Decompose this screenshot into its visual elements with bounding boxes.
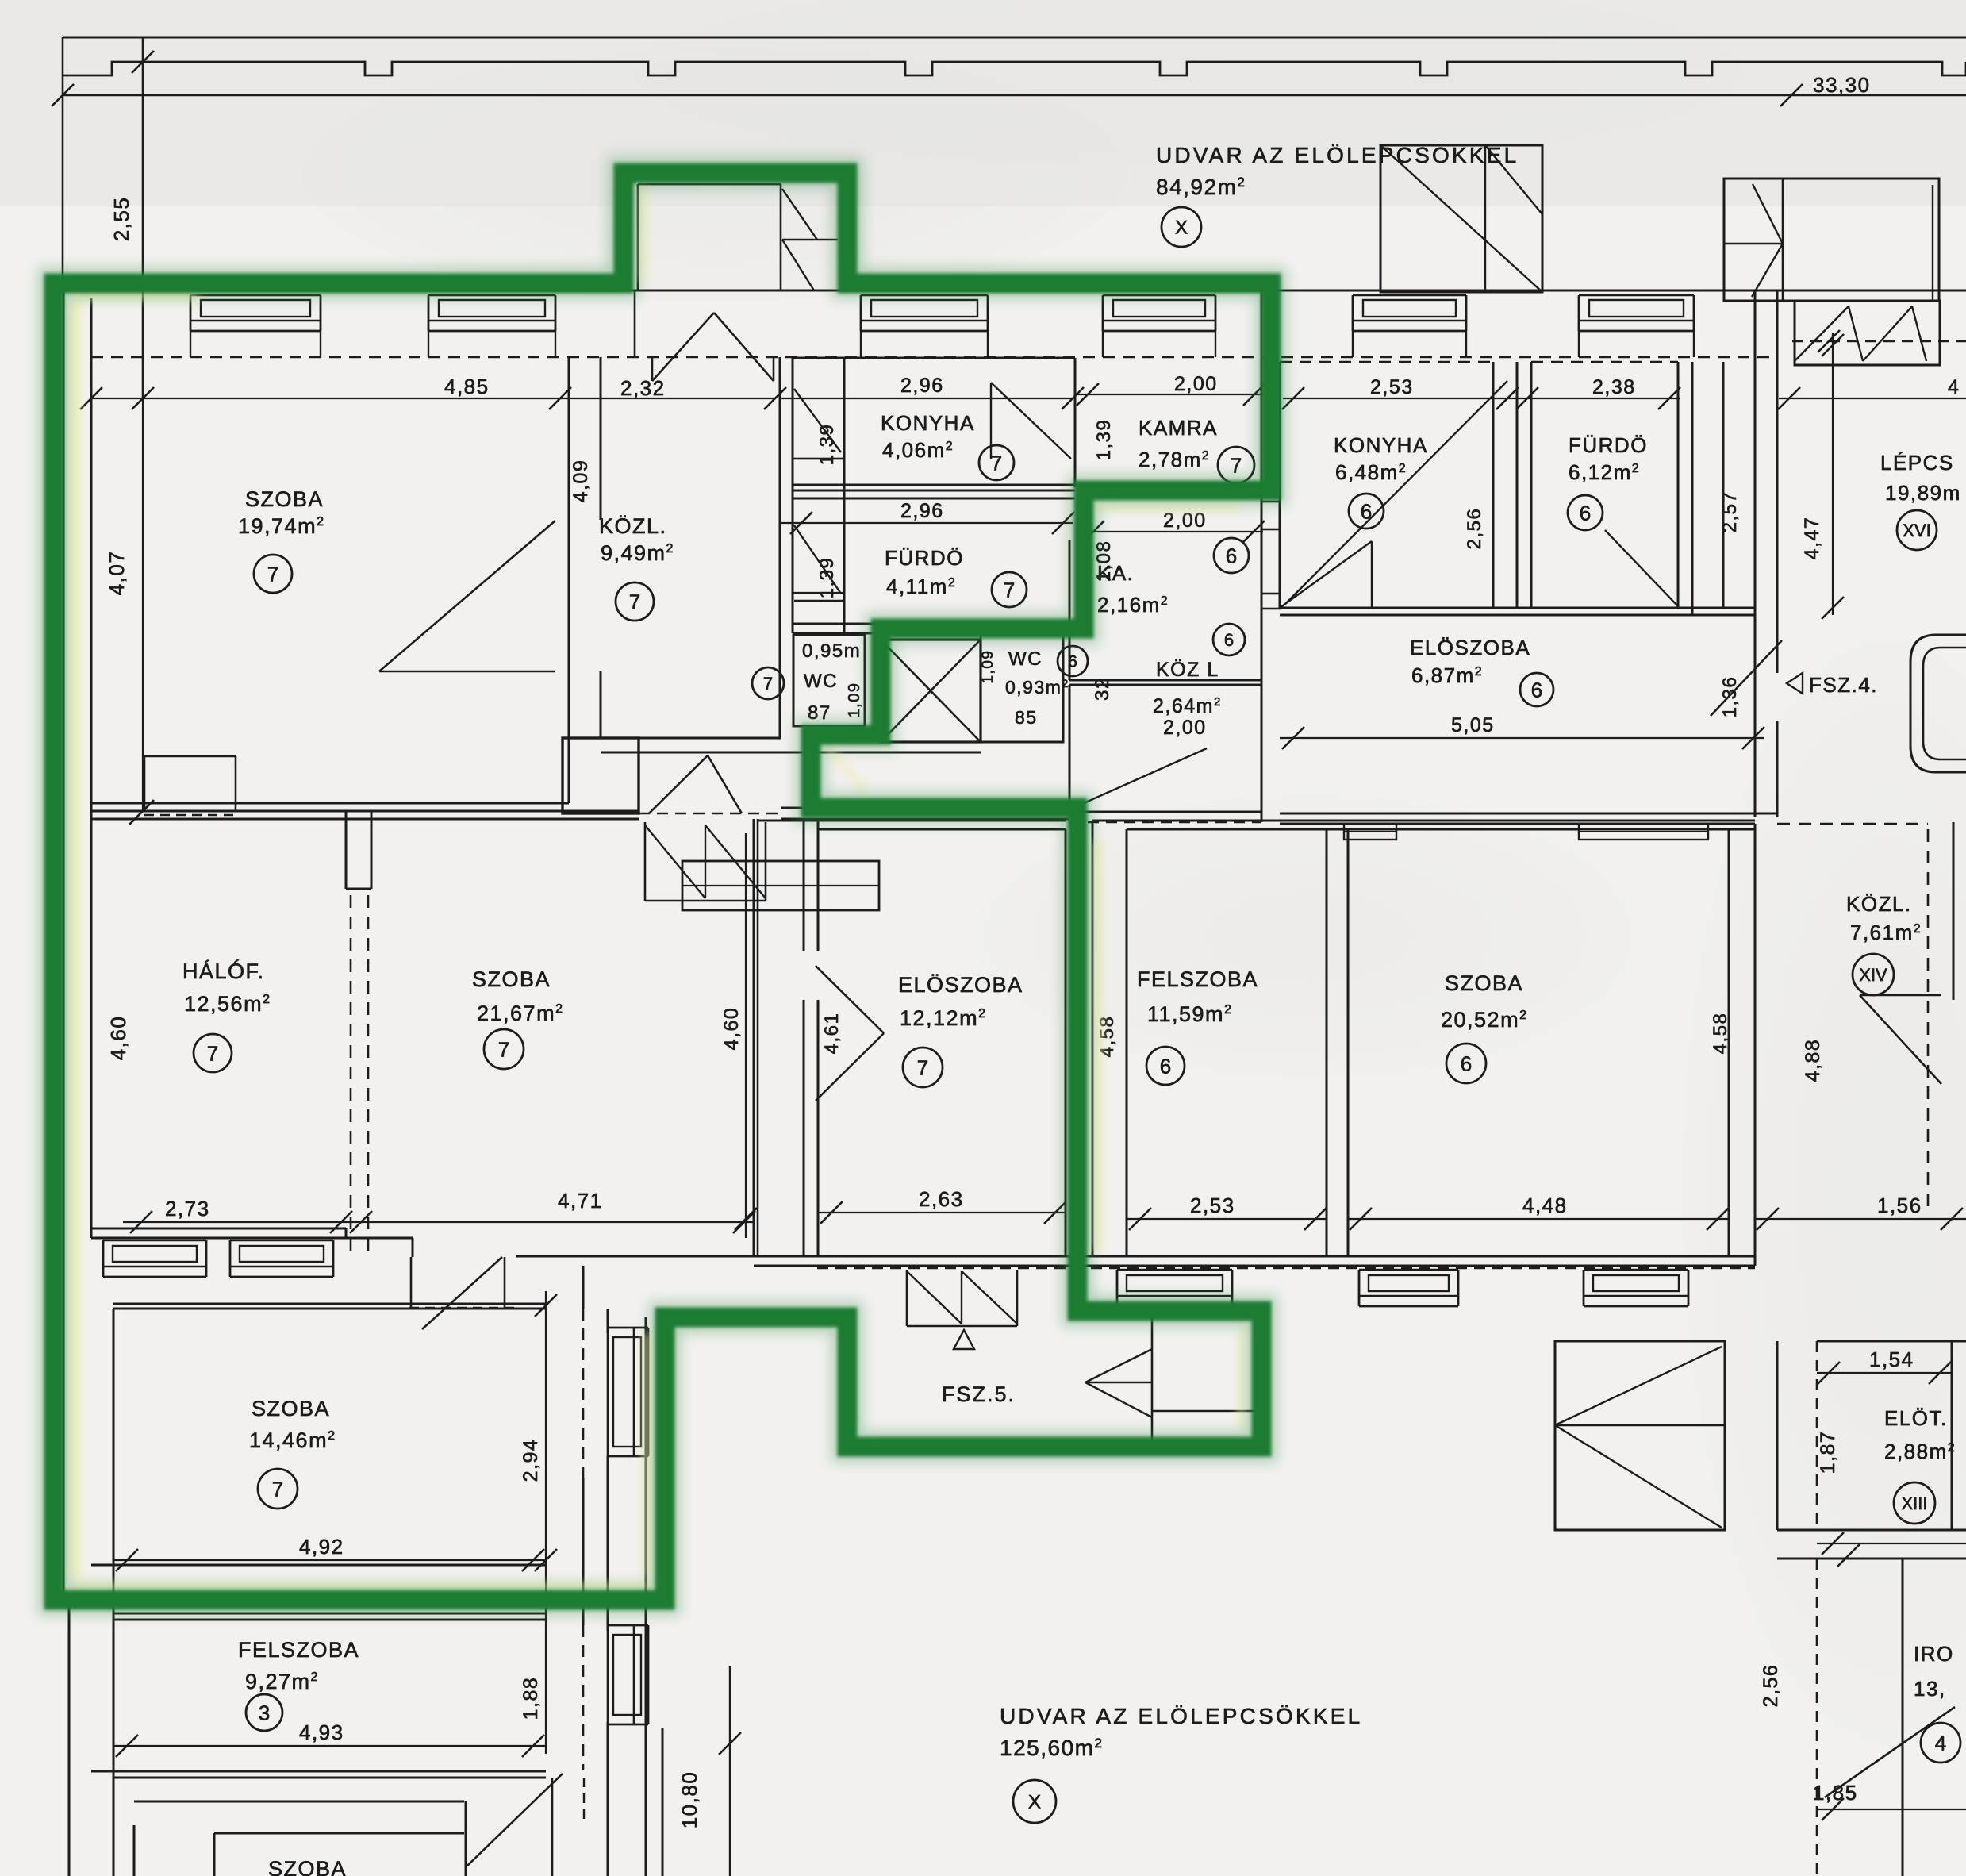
svg-text:6,12m2: 6,12m2 bbox=[1569, 460, 1640, 484]
svg-text:2,53: 2,53 bbox=[1190, 1194, 1235, 1217]
svg-text:SZOBA: SZOBA bbox=[268, 1857, 347, 1876]
svg-text:4,60: 4,60 bbox=[106, 1016, 130, 1061]
svg-text:WC: WC bbox=[804, 671, 838, 692]
svg-text:21,67m2: 21,67m2 bbox=[477, 1001, 563, 1025]
svg-text:2,94: 2,94 bbox=[520, 1439, 542, 1482]
svg-text:20,52m2: 20,52m2 bbox=[1441, 1008, 1527, 1032]
svg-text:7: 7 bbox=[498, 1037, 509, 1061]
svg-text:4,88: 4,88 bbox=[1802, 1039, 1824, 1082]
svg-text:ELÖSZOBA: ELÖSZOBA bbox=[1410, 636, 1530, 659]
svg-text:2,00: 2,00 bbox=[1163, 717, 1207, 739]
svg-text:4,71: 4,71 bbox=[558, 1189, 603, 1213]
svg-text:HÁLÓF.: HÁLÓF. bbox=[182, 959, 265, 983]
svg-text:1,88: 1,88 bbox=[520, 1677, 542, 1720]
svg-text:SZOBA: SZOBA bbox=[252, 1397, 330, 1420]
svg-text:85: 85 bbox=[1015, 707, 1038, 728]
svg-text:2,78m2: 2,78m2 bbox=[1139, 448, 1210, 471]
svg-text:9,27m2: 9,27m2 bbox=[245, 1670, 319, 1693]
svg-text:6,87m2: 6,87m2 bbox=[1411, 663, 1483, 687]
svg-text:2,73: 2,73 bbox=[165, 1197, 210, 1221]
svg-text:4,47: 4,47 bbox=[1801, 517, 1823, 560]
svg-text:FÜRDÖ: FÜRDÖ bbox=[1569, 433, 1648, 457]
svg-text:6: 6 bbox=[1531, 678, 1542, 702]
svg-text:7: 7 bbox=[272, 1477, 283, 1501]
svg-text:FELSZOBA: FELSZOBA bbox=[1137, 967, 1258, 991]
svg-text:2,63: 2,63 bbox=[919, 1187, 964, 1211]
svg-text:KAMRA: KAMRA bbox=[1139, 416, 1218, 440]
svg-text:19,74m2: 19,74m2 bbox=[238, 514, 324, 538]
svg-text:2,32: 2,32 bbox=[620, 376, 666, 400]
svg-text:12,12m2: 12,12m2 bbox=[900, 1006, 986, 1030]
svg-text:7: 7 bbox=[1231, 453, 1242, 477]
svg-text:2,64m2: 2,64m2 bbox=[1153, 695, 1222, 717]
svg-text:X: X bbox=[1175, 217, 1188, 239]
svg-text:4,92: 4,92 bbox=[299, 1535, 344, 1559]
svg-text:4,11m2: 4,11m2 bbox=[886, 575, 956, 598]
svg-text:UDVAR AZ ELÖLEPCSÖKKEL: UDVAR AZ ELÖLEPCSÖKKEL bbox=[1000, 1704, 1362, 1728]
svg-text:2,56: 2,56 bbox=[1760, 1664, 1782, 1708]
svg-text:1,87: 1,87 bbox=[1817, 1431, 1839, 1474]
svg-text:4,93: 4,93 bbox=[299, 1720, 344, 1744]
svg-text:ELÖT.: ELÖT. bbox=[1884, 1406, 1948, 1430]
svg-text:FÜRDÖ: FÜRDÖ bbox=[885, 546, 964, 570]
svg-text:6: 6 bbox=[1224, 630, 1234, 650]
svg-text:7: 7 bbox=[207, 1041, 218, 1065]
svg-text:4,07: 4,07 bbox=[105, 551, 129, 596]
svg-text:2,16m2: 2,16m2 bbox=[1097, 593, 1169, 617]
svg-text:4,61: 4,61 bbox=[821, 1013, 843, 1055]
svg-text:SZOBA: SZOBA bbox=[245, 487, 324, 511]
svg-text:0,93m2: 0,93m2 bbox=[1005, 677, 1069, 698]
svg-text:2,96: 2,96 bbox=[900, 500, 944, 522]
svg-text:10,80: 10,80 bbox=[678, 1771, 701, 1829]
svg-text:FSZ.5.: FSZ.5. bbox=[942, 1382, 1016, 1406]
svg-text:84,92m2: 84,92m2 bbox=[1156, 175, 1246, 199]
svg-text:1,09: 1,09 bbox=[846, 682, 863, 718]
svg-text:4,48: 4,48 bbox=[1522, 1194, 1568, 1217]
svg-text:FELSZOBA: FELSZOBA bbox=[238, 1638, 359, 1662]
svg-text:14,46m2: 14,46m2 bbox=[249, 1428, 336, 1452]
svg-text:2,56: 2,56 bbox=[1464, 508, 1485, 550]
svg-text:7: 7 bbox=[991, 451, 1002, 475]
svg-text:2,55: 2,55 bbox=[109, 197, 133, 242]
svg-text:4: 4 bbox=[1948, 376, 1960, 398]
svg-text:1,54: 1,54 bbox=[1869, 1347, 1914, 1371]
svg-text:1,09: 1,09 bbox=[980, 650, 996, 684]
svg-text:6: 6 bbox=[1160, 1054, 1171, 1078]
svg-text:X: X bbox=[1028, 1792, 1041, 1813]
svg-text:9,49m2: 9,49m2 bbox=[601, 541, 674, 565]
svg-text:1,85: 1,85 bbox=[1813, 1781, 1858, 1805]
svg-text:WC: WC bbox=[1008, 648, 1043, 670]
svg-text:6: 6 bbox=[1580, 501, 1591, 525]
svg-text:7: 7 bbox=[267, 562, 278, 586]
svg-text:XIV: XIV bbox=[1859, 965, 1887, 985]
svg-text:5,05: 5,05 bbox=[1451, 714, 1495, 736]
svg-text:2,00: 2,00 bbox=[1174, 373, 1218, 395]
svg-text:6: 6 bbox=[1068, 653, 1077, 671]
svg-text:2,88m2: 2,88m2 bbox=[1884, 1440, 1956, 1463]
svg-text:6: 6 bbox=[1461, 1051, 1472, 1075]
svg-text:32: 32 bbox=[1092, 677, 1113, 701]
svg-text:6,48m2: 6,48m2 bbox=[1335, 460, 1407, 484]
svg-text:2,00: 2,00 bbox=[1163, 509, 1207, 532]
svg-text:SZOBA: SZOBA bbox=[1445, 971, 1523, 995]
svg-text:XIII: XIII bbox=[1901, 1493, 1927, 1513]
svg-text:0,95m: 0,95m bbox=[802, 640, 861, 662]
svg-text:33,30: 33,30 bbox=[1813, 73, 1871, 97]
svg-text:4,09: 4,09 bbox=[570, 459, 592, 503]
svg-text:KONYHA: KONYHA bbox=[881, 411, 975, 435]
svg-text:7: 7 bbox=[1004, 578, 1015, 602]
svg-text:125,60m2: 125,60m2 bbox=[1000, 1736, 1103, 1760]
svg-text:LÉPCS: LÉPCS bbox=[1880, 451, 1954, 475]
svg-text:KÖZL.: KÖZL. bbox=[599, 514, 667, 538]
svg-text:7,61m2: 7,61m2 bbox=[1850, 921, 1922, 944]
svg-text:KÖZL.: KÖZL. bbox=[1846, 892, 1912, 916]
svg-text:11,59m2: 11,59m2 bbox=[1147, 1002, 1232, 1026]
svg-text:1,39: 1,39 bbox=[1093, 419, 1115, 461]
svg-text:FSZ.4.: FSZ.4. bbox=[1809, 673, 1878, 697]
svg-text:2,96: 2,96 bbox=[900, 375, 944, 397]
svg-text:SZOBA: SZOBA bbox=[472, 967, 551, 991]
svg-text:2,53: 2,53 bbox=[1370, 376, 1414, 398]
svg-text:IRO: IRO bbox=[1914, 1642, 1954, 1666]
svg-text:1,56: 1,56 bbox=[1877, 1194, 1922, 1217]
svg-text:3: 3 bbox=[259, 1701, 270, 1724]
svg-text:KÖZ L: KÖZ L bbox=[1156, 659, 1219, 681]
svg-text:XVI: XVI bbox=[1903, 521, 1930, 540]
svg-text:ELÖSZOBA: ELÖSZOBA bbox=[898, 973, 1023, 997]
svg-text:13,: 13, bbox=[1914, 1677, 1946, 1701]
svg-text:2,38: 2,38 bbox=[1592, 376, 1636, 398]
svg-text:UDVAR AZ ELÖLEPCSÖKKEL: UDVAR AZ ELÖLEPCSÖKKEL bbox=[1156, 143, 1519, 167]
svg-text:19,89m: 19,89m bbox=[1885, 481, 1961, 505]
svg-text:KONYHA: KONYHA bbox=[1334, 433, 1428, 457]
svg-text:7: 7 bbox=[763, 674, 773, 694]
svg-text:7: 7 bbox=[629, 590, 640, 613]
svg-text:7: 7 bbox=[917, 1055, 928, 1079]
svg-text:4,60: 4,60 bbox=[720, 1007, 743, 1051]
svg-text:4,06m2: 4,06m2 bbox=[882, 438, 954, 462]
svg-text:6: 6 bbox=[1226, 544, 1237, 567]
svg-text:4,85: 4,85 bbox=[444, 375, 490, 398]
svg-text:4: 4 bbox=[1935, 1731, 1946, 1755]
svg-text:12,56m2: 12,56m2 bbox=[184, 992, 271, 1016]
